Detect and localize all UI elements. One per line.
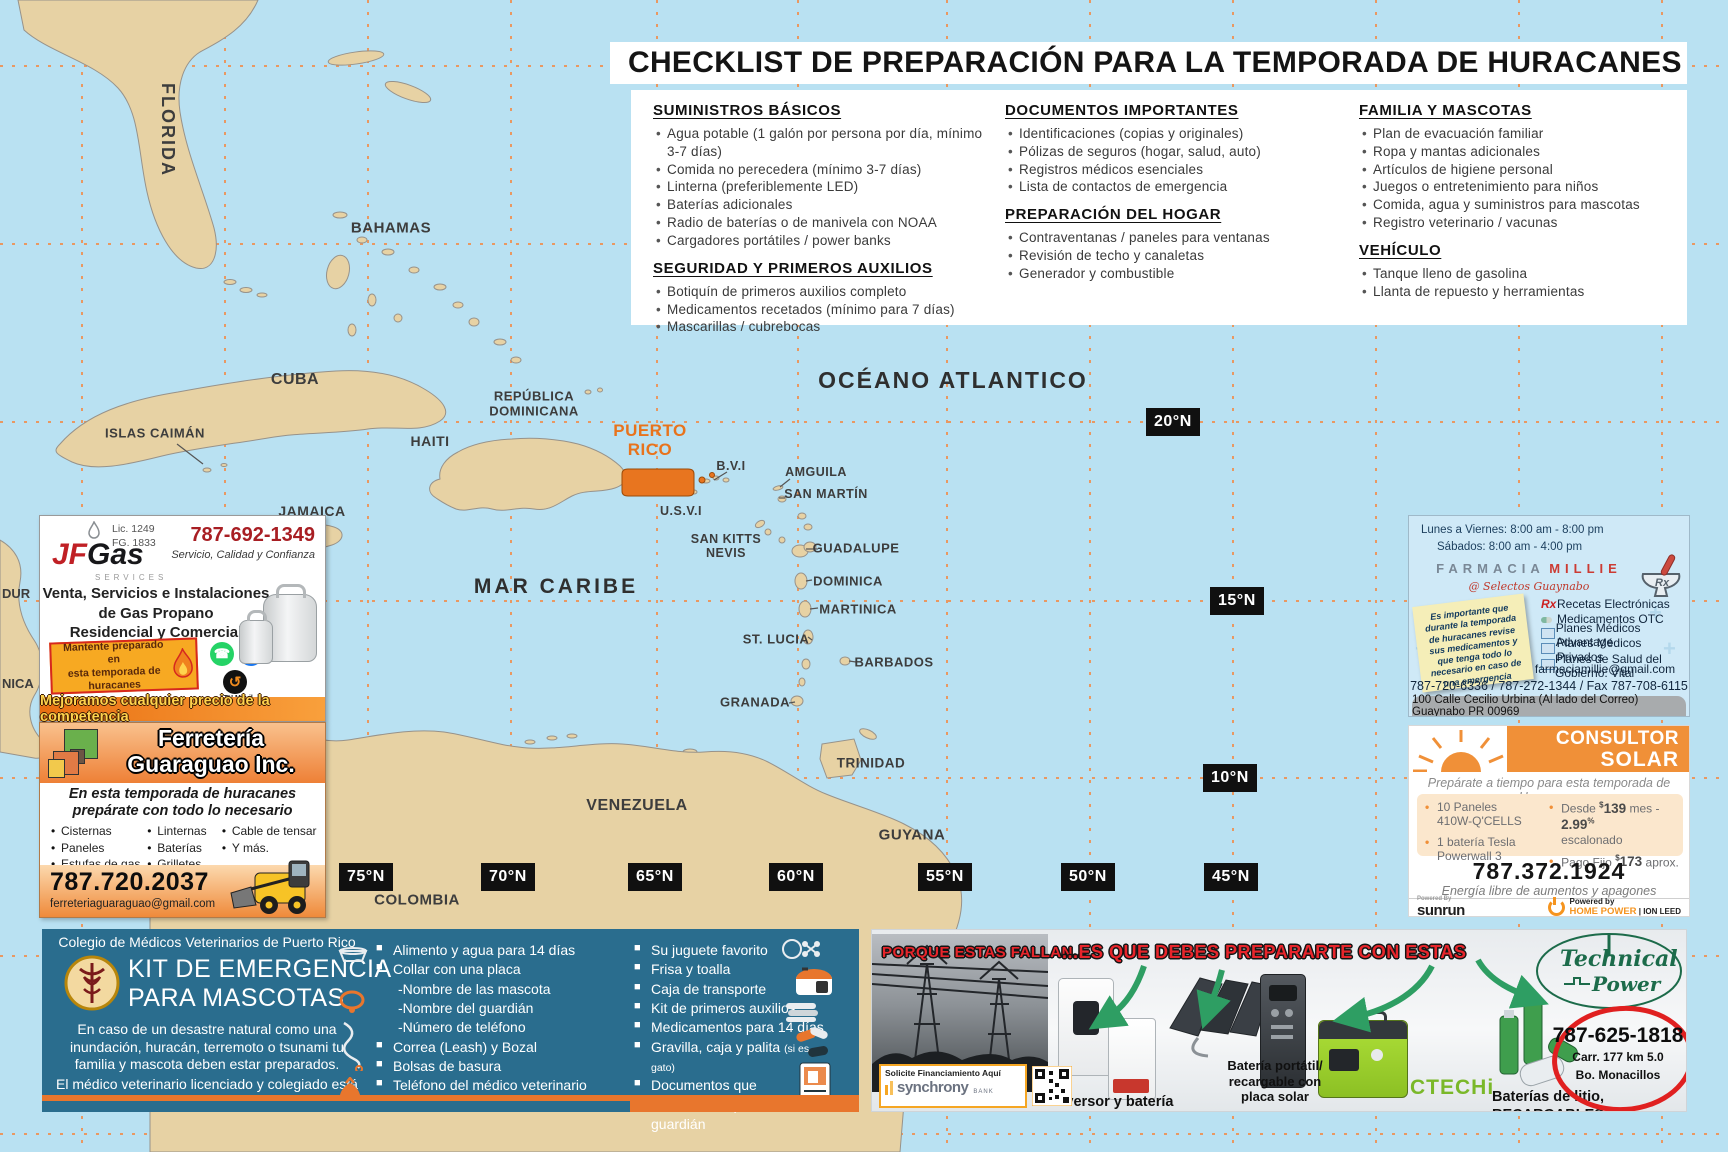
towel-stack-icon [784, 1001, 820, 1023]
label-guyana: GUYANA [879, 828, 946, 845]
spec-item: 10 Paneles410W-Q'CELLS [1425, 800, 1541, 829]
synchrony-wordmark: synchrony [897, 1080, 968, 1095]
vet-stripe-teal [42, 1101, 630, 1112]
vet-subitem: -Nombre del guardián [376, 999, 616, 1018]
solar-header: CONSULTOR SOLAR [1409, 726, 1689, 772]
technical-address-2: Bo. Monacillos [1552, 1068, 1684, 1082]
ferreteria-email: ferreteriaguaraguao@gmail.com [50, 898, 215, 910]
lon-label-70: 70°N [481, 863, 535, 891]
pharmacy-name: FARMACIA MILLIE @ Selectos Guaynabo [1409, 560, 1649, 593]
whatsapp-icon: ☎ [210, 642, 234, 666]
checklist-item: Lista de contactos de emergencia [1005, 178, 1335, 196]
checklist-item: Tanque lleno de gasolina [1359, 265, 1679, 283]
label-republica-dominicana: REPÚBLICA DOMINICANA [489, 389, 579, 418]
vet-item: Teléfono del médico veterinario [376, 1076, 616, 1095]
power-icon [1548, 899, 1565, 916]
badge-text: Mantente preparado en esta temporada de … [57, 638, 171, 694]
technical-power-ad: PORQUE ESTAS FALLAN... ...ES QUE DEBES P… [871, 929, 1687, 1112]
label-usvi: U.S.V.I [660, 504, 702, 518]
sun-icon [1409, 726, 1507, 772]
checklist-item: Ropa y mantas adicionales [1359, 143, 1679, 161]
checklist-item: Registro veterinario / vacunas [1359, 214, 1679, 232]
vet-subitem: -Nombre de las mascota [376, 980, 616, 999]
label-martinica: MARTINICA [819, 603, 896, 618]
brand-services: SERVICES [95, 573, 167, 582]
product-item: Cisternas [50, 823, 146, 839]
jfgas-slogan: Servicio, Calidad y Confianza [171, 549, 315, 561]
vet-stripe-orange2 [630, 1103, 859, 1112]
product-item: Linternas [146, 823, 221, 839]
financing-label: Solicite Financiamiento Aquí [885, 1068, 1021, 1078]
product-item: Baterías [146, 840, 221, 856]
hurricane-map-infographic: FLORIDA BAHAMAS CUBA ISLAS CAIMÁN JAMAIC… [0, 0, 1728, 1152]
rx-icon: Rx [1541, 597, 1557, 611]
home-power-text: Powered by HOME POWER | ION LEED [1569, 898, 1681, 917]
checklist-item: Medicamentos recetados (mínimo para 7 dí… [653, 301, 983, 319]
label-san-martin: SAN MARTÍN [784, 487, 867, 501]
checklist-item: Revisión de techo y canaletas [1005, 247, 1335, 265]
jfgas-bottom-strip: Mejoramos cualquier precio de la compete… [40, 697, 325, 721]
checklist-item: Mascarillas / cubrebocas [653, 318, 983, 336]
pet-bowl-icon [338, 947, 368, 963]
section-heading: SEGURIDAD Y PRIMEROS AUXILIOS [653, 260, 983, 277]
lon-label-60: 60°N [769, 863, 823, 891]
label-granada: GRANADA [720, 696, 790, 711]
ferreteria-phone: 787.720.2037 [50, 868, 209, 897]
jfgas-services-text: Venta, Servicios e Instalaciones de Gas … [40, 584, 272, 643]
card-icon [1541, 628, 1556, 642]
pharmacy-name-part1: FARMACIA [1436, 561, 1545, 576]
section-heading: PREPARACIÓN DEL HOGAR [1005, 206, 1335, 223]
pharmacy-hours: Lunes a Viernes: 8:00 am - 8:00 pm Sábad… [1421, 522, 1604, 555]
checklist-item: Llanta de repuesto y herramientas [1359, 283, 1679, 301]
label-amguila: AMGUILA [785, 465, 847, 479]
ferreteria-title-line1: Ferretería [102, 725, 320, 751]
label-guadalupe: GUADALUPE [813, 542, 900, 557]
solar-title-line2: SOLAR [1507, 749, 1679, 771]
tagline-line2: prepárate con todo lo necesario [40, 803, 325, 820]
propane-tank-small-image [239, 620, 273, 664]
product-item: Paneles [50, 840, 146, 856]
checklist-column-1: SUMINISTROS BÁSICOS Agua potable (1 galó… [653, 102, 983, 346]
otc-icon [1541, 612, 1557, 626]
checklist-item: Artículos de higiene personal [1359, 161, 1679, 179]
leash-icon [336, 1021, 366, 1071]
solar-footer: Powered By sunrun Powered by HOME POWER … [1409, 898, 1689, 916]
product-item: Cable de tensar [221, 823, 319, 839]
sunrun-wordmark: sunrun [1417, 902, 1465, 919]
checklist-item: Cargadores portátiles / power banks [653, 232, 983, 250]
section-heading: FAMILIA Y MASCOTAS [1359, 102, 1679, 119]
consultor-solar-ad: CONSULTOR SOLAR Prepárate a tiempo para … [1408, 725, 1690, 917]
technical-power-logo: Technical Power [1534, 932, 1684, 1010]
checklist-item: Generador y combustible [1005, 265, 1335, 283]
checklist-title: CHECKLIST DE PREPARACIÓN PARA LA TEMPORA… [610, 42, 1687, 84]
ferreteria-footer: 787.720.2037 ferreteriaguaraguao@gmail.c… [40, 865, 325, 917]
brand-line2: Power [1592, 972, 1660, 996]
flame-icon [171, 648, 194, 681]
section-heading: VEHÍCULO [1359, 242, 1679, 259]
technical-address-1: Carr. 177 km 5.0 [1552, 1050, 1684, 1064]
price-item: Desde $139 mes - 2.99% escalonado [1549, 800, 1683, 848]
ferreteria-ad: Ferretería Guaraguao Inc. En esta tempor… [39, 722, 326, 918]
lon-label-45: 45°N [1204, 863, 1258, 891]
checklist-item: Juegos o entretenimiento para niños [1359, 178, 1679, 196]
jfgas-logo: JFGas [52, 540, 144, 570]
puerto-rico-land [622, 469, 694, 496]
section-items: Plan de evacuación familiar Ropa y manta… [1359, 125, 1679, 232]
label-san-kitts-nevis: SAN KITTS NEVIS [691, 532, 761, 560]
vet-org-name: Colegio de Médicos Veterinarios de Puert… [42, 934, 372, 950]
lat-label-10n: 10°N [1203, 764, 1257, 792]
solar-phone: 787.372.1924 [1409, 858, 1689, 885]
svg-text:Rx: Rx [1655, 577, 1670, 589]
checklist-item: Baterías adicionales [653, 196, 983, 214]
checklist-item: Registros médicos esenciales [1005, 161, 1335, 179]
lon-label-55: 55°N [918, 863, 972, 891]
skid-steer-loader-image [229, 857, 321, 915]
lon-label-50: 50°N [1061, 863, 1115, 891]
label-cuba: CUBA [271, 371, 319, 389]
label-dominica: DOMINICA [813, 575, 883, 590]
solar-title-line1: CONSULTOR [1507, 729, 1679, 749]
vet-item: Collar con una placa [376, 960, 616, 979]
home-power-logo: Powered by HOME POWER | ION LEED [1548, 898, 1681, 917]
checklist-item: Botiquín de primeros auxilios completo [653, 283, 983, 301]
jfgas-phone: 787-692-1349 [190, 524, 315, 547]
label-mar-caribe: MAR CARIBE [474, 575, 638, 599]
synchrony-logo: synchrony BANK [885, 1080, 1021, 1095]
pharmacy-address: 100 Calle Cecilio Urbina (Al lado del Co… [1412, 696, 1686, 716]
tagline-line1: En esta temporada de huracanes [40, 786, 325, 803]
vet-checklist-col1: Alimento y agua para 14 días Collar con … [376, 941, 616, 1096]
service-label: Recetas Electrónicas [1557, 597, 1670, 611]
solar-title: CONSULTOR SOLAR [1507, 726, 1689, 772]
ferreteria-header: Ferretería Guaraguao Inc. [40, 723, 325, 783]
label-puerto-rico: PUERTO RICO [613, 421, 687, 459]
solar-offer-box: 10 Paneles410W-Q'CELLS 1 batería TeslaPo… [1417, 794, 1683, 856]
vet-item: Correa (Leash) y Bozal [376, 1038, 616, 1057]
technical-phone: 787-625-1818 [1552, 1024, 1684, 1048]
label-colombia: COLOMBIA [374, 893, 460, 910]
checklist-item: Comida no perecedera (mínimo 3-7 días) [653, 161, 983, 179]
vet-college-seal-icon [64, 955, 120, 1011]
solar-specs: 10 Paneles410W-Q'CELLS 1 batería TeslaPo… [1417, 800, 1541, 856]
pharmacy-phones: 787-720-6336 / 787-272-1344 / Fax 787-70… [1409, 679, 1689, 693]
label-st-lucia: ST. LUCIA [743, 633, 810, 648]
checklist-item: Plan de evacuación familiar [1359, 125, 1679, 143]
service-line: de Gas Propano [40, 604, 272, 624]
pharmacy-name-part2: MILLIE [1549, 561, 1622, 576]
label-haiti: HAITI [410, 434, 449, 450]
vet-item: Alimento y agua para 14 días [376, 941, 616, 960]
synchrony-financing-box: Solicite Financiamiento Aquí synchrony B… [879, 1064, 1027, 1108]
checklist-item: Comida, agua y suministros para mascotas [1359, 196, 1679, 214]
lon-label-75: 75°N [339, 863, 393, 891]
hours-saturday: Sábados: 8:00 am - 4:00 pm [1421, 539, 1604, 556]
vet-paragraph-1: En caso de un desastre natural como una … [52, 1021, 362, 1074]
ferreteria-title-line2: Guaraguao Inc. [102, 751, 320, 777]
toy-ball-bone-icon [780, 937, 822, 961]
synchrony-bank-label: BANK [973, 1089, 993, 1095]
section-items: Botiquín de primeros auxilios completo M… [653, 283, 983, 336]
brand-jf: JF [52, 538, 87, 571]
brand-gas: Gas [87, 538, 144, 571]
service-row: RxRecetas Electrónicas [1541, 596, 1689, 612]
pharmacy-email: farmaciamillie@gmail.com [1519, 662, 1690, 676]
section-items: Tanque lleno de gasolina Llanta de repue… [1359, 265, 1679, 301]
checklist-column-2: DOCUMENTOS IMPORTANTES Identificaciones … [1005, 102, 1335, 293]
pet-carrier-icon [794, 963, 834, 997]
solar-pricing: Desde $139 mes - 2.99% escalonado Pago F… [1541, 800, 1683, 856]
label-trinidad: TRINIDAD [837, 755, 906, 770]
checklist-item: Contraventanas / paneles para ventanas [1005, 229, 1335, 247]
ferreteria-title: Ferretería Guaraguao Inc. [102, 725, 320, 778]
vet-item: Bolsas de basura [376, 1057, 616, 1076]
label-bvi: B.V.I [716, 459, 745, 473]
vet-subitem: -Número de teléfono [376, 1018, 616, 1037]
vet-emergency-kit-ad: Colegio de Médicos Veterinarios de Puert… [42, 929, 859, 1112]
reminder-sticky-note: Es importante que durante la temporada d… [1412, 593, 1534, 692]
checklist-item: Pólizas de seguros (hogar, salud, auto) [1005, 143, 1335, 161]
service-line: Venta, Servicios e Instalaciones [40, 584, 272, 604]
section-heading: SUMINISTROS BÁSICOS [653, 102, 983, 119]
synchrony-bars-icon [885, 1081, 894, 1095]
ferreteria-tagline: En esta temporada de huracanes prepárate… [40, 786, 325, 819]
sunrun-logo: Powered By sunrun [1417, 896, 1465, 920]
farmacia-millie-ad: + + + Lunes a Viernes: 8:00 am - 8:00 pm… [1408, 515, 1690, 717]
lat-label-20n: 20°N [1146, 408, 1200, 436]
label-islas-caiman: ISLAS CAIMÁN [105, 427, 205, 442]
label-oceano-atlantico: OCÉANO ATLANTICO [818, 368, 1088, 394]
collar-icon [338, 989, 366, 1015]
label-bahamas: BAHAMAS [351, 221, 431, 238]
label-barbados: BARBADOS [854, 656, 933, 671]
lat-label-15n: 15°N [1210, 587, 1264, 615]
ferreteria-logo-icon [48, 727, 102, 779]
checklist-panel: SUMINISTROS BÁSICOS Agua potable (1 galó… [631, 90, 1687, 325]
product-item: Y más. [221, 840, 319, 856]
hours-weekdays: Lunes a Viernes: 8:00 am - 8:00 pm [1421, 522, 1604, 539]
ath-movil-icon: ↺ [223, 670, 247, 694]
label-fragment-nicaragua: NICA [2, 676, 34, 691]
cayman-islands [203, 468, 211, 472]
section-items: Identificaciones (copias y originales) P… [1005, 125, 1335, 196]
checklist-item: Linterna (preferiblemente LED) [653, 178, 983, 196]
checklist-item: Agua potable (1 galón por persona por dí… [653, 125, 983, 161]
license-1: Lic. 1249 [112, 523, 156, 537]
section-heading: DOCUMENTOS IMPORTANTES [1005, 102, 1335, 119]
checklist-column-3: FAMILIA Y MASCOTAS Plan de evacuación fa… [1359, 102, 1679, 311]
qr-code [1032, 1066, 1072, 1106]
jfgas-ad: Lic. 1249 FG. 1833 JFGas SERVICES 787-69… [39, 515, 326, 722]
pills-icon [794, 1027, 830, 1061]
lon-label-65: 65°N [628, 863, 682, 891]
checklist-item: Radio de baterías o de manivela con NOAA [653, 214, 983, 232]
hurricane-badge: Mantente preparado en esta temporada de … [49, 637, 199, 694]
label-florida: FLORIDA [158, 83, 178, 177]
label-venezuela: VENEZUELA [586, 797, 687, 815]
pharmacy-location-script: @ Selectos Guaynabo [1409, 580, 1649, 593]
section-items: Contraventanas / paneles para ventanas R… [1005, 229, 1335, 282]
brand-line1: Technical [1560, 946, 1678, 972]
section-items: Agua potable (1 galón por persona por dí… [653, 125, 983, 250]
checklist-item: Identificaciones (copias y originales) [1005, 125, 1335, 143]
label-fragment-honduras: DUR [2, 586, 30, 601]
